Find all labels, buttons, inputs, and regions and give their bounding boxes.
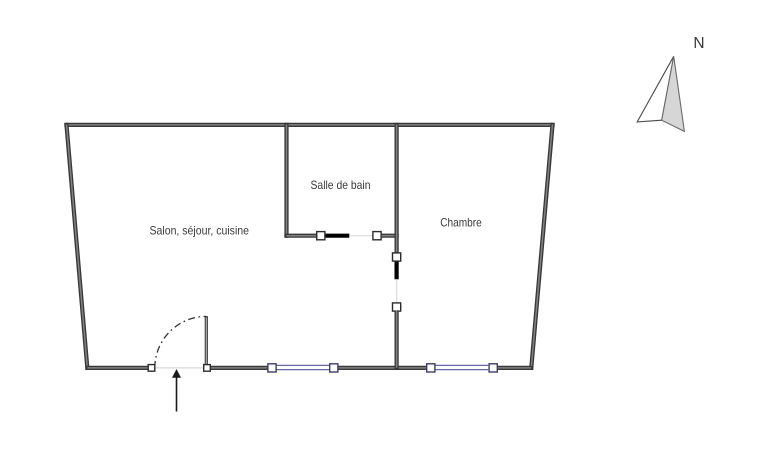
svg-text:Chambre: Chambre	[440, 216, 482, 230]
svg-text:Salle de bain: Salle de bain	[311, 178, 371, 192]
svg-text:Salon, séjour, cuisine: Salon, séjour, cuisine	[150, 223, 250, 237]
svg-text:N: N	[693, 35, 704, 52]
